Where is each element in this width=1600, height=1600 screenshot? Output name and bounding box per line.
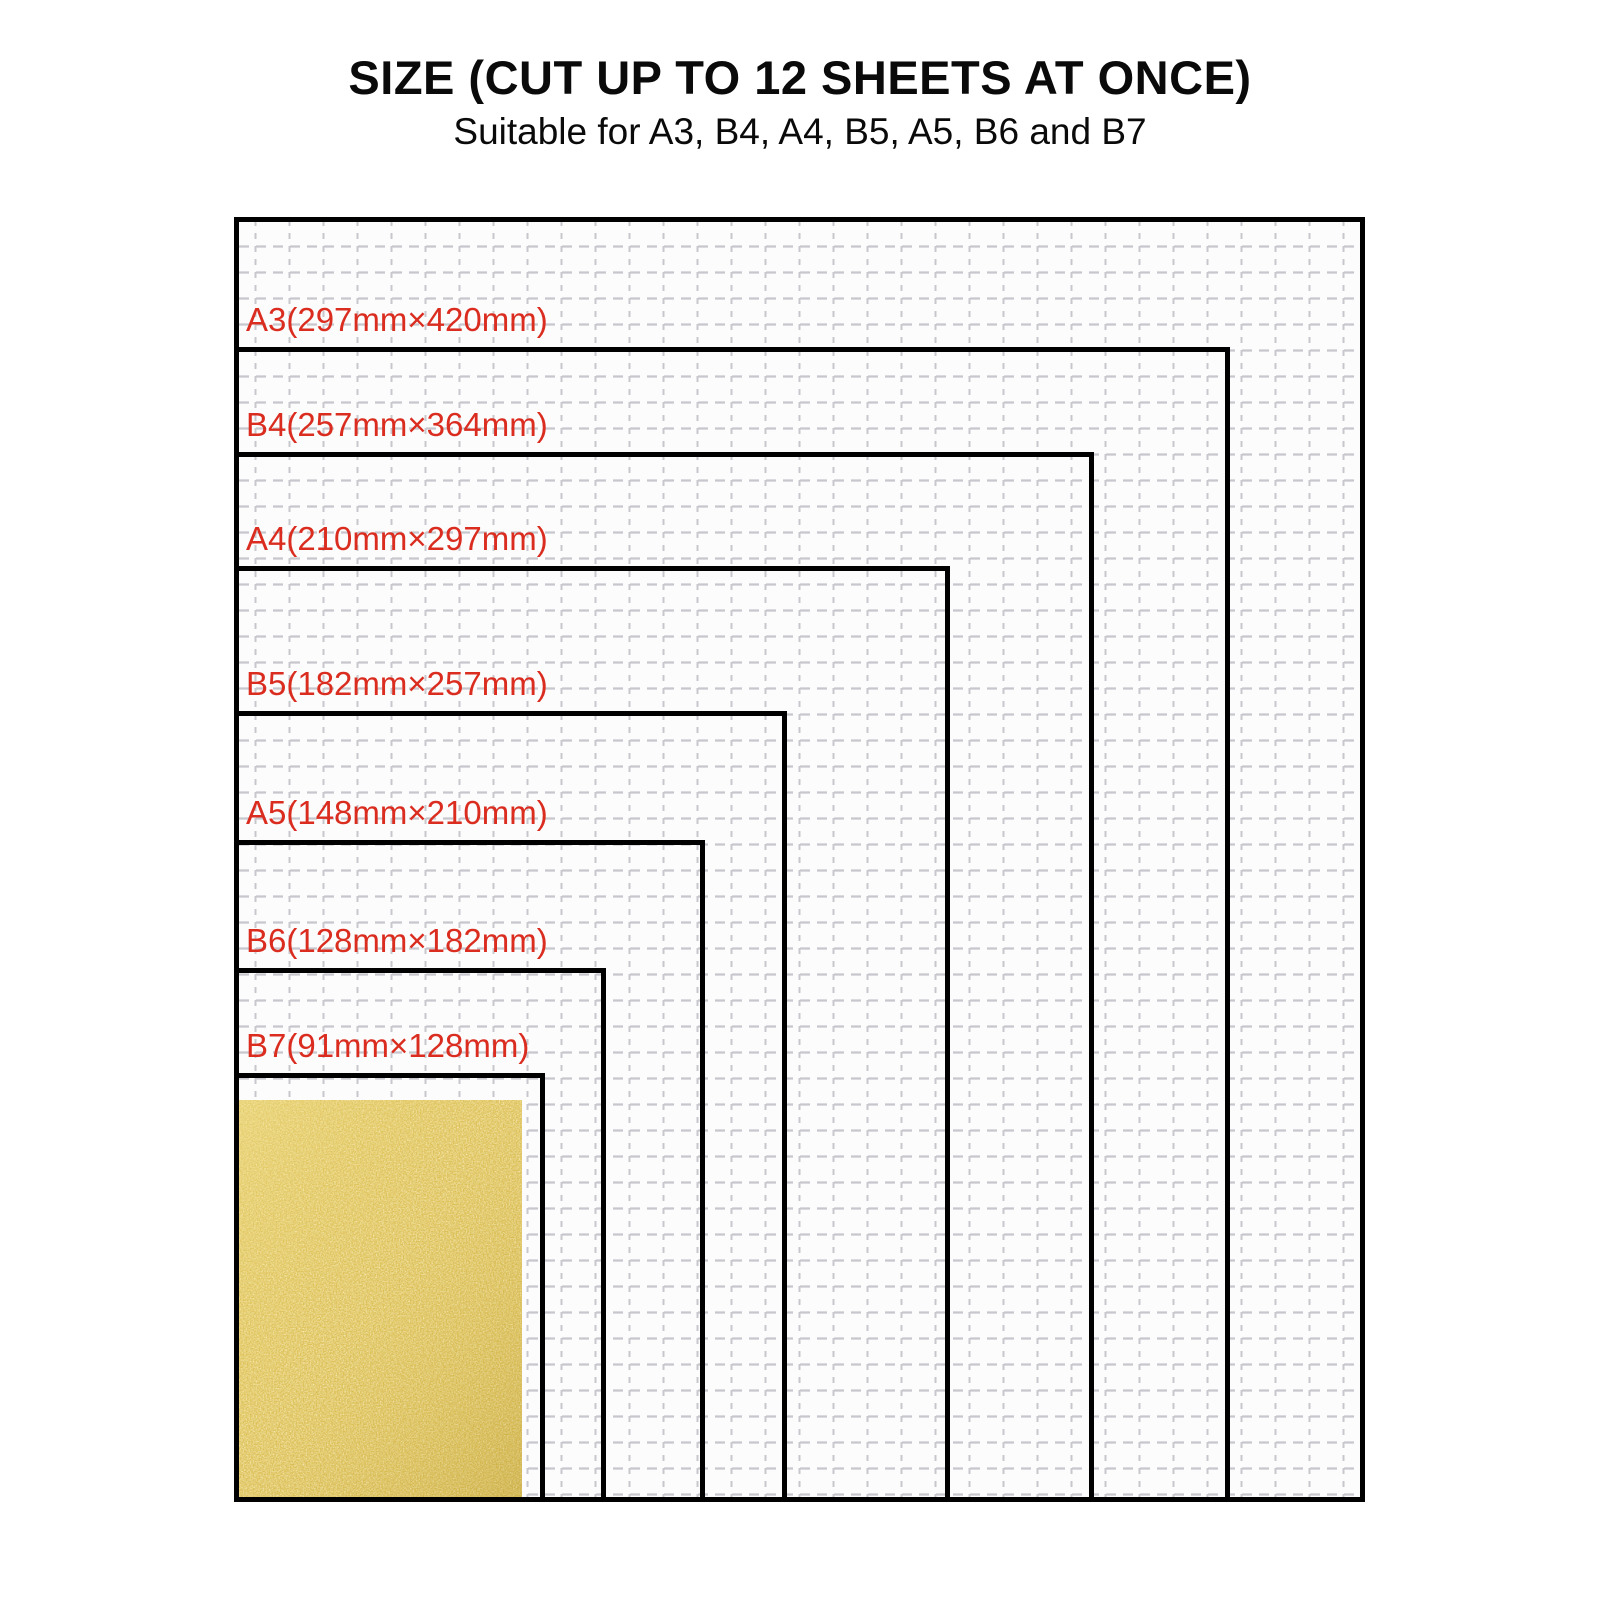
page-title: SIZE (CUT UP TO 12 SHEETS AT ONCE) — [0, 52, 1600, 104]
size-label-a5: A5(148mm×210mm) — [246, 793, 548, 833]
page: SIZE (CUT UP TO 12 SHEETS AT ONCE) Suita… — [0, 0, 1600, 1600]
size-label-a4: A4(210mm×297mm) — [246, 519, 548, 559]
size-label-b4: B4(257mm×364mm) — [246, 405, 548, 445]
size-label-b6: B6(128mm×182mm) — [246, 921, 548, 961]
page-subtitle: Suitable for A3, B4, A4, B5, A5, B6 and … — [0, 112, 1600, 153]
size-label-b7: B7(91mm×128mm) — [246, 1026, 529, 1066]
size-label-b5: B5(182mm×257mm) — [246, 664, 548, 704]
cutting-mat-board: A3(297mm×420mm) B4(257mm×364mm) A4(210mm… — [234, 217, 1365, 1502]
size-label-a3: A3(297mm×420mm) — [246, 300, 548, 340]
glitter-texture — [239, 1100, 522, 1497]
gold-glitter-sheet — [239, 1100, 522, 1497]
